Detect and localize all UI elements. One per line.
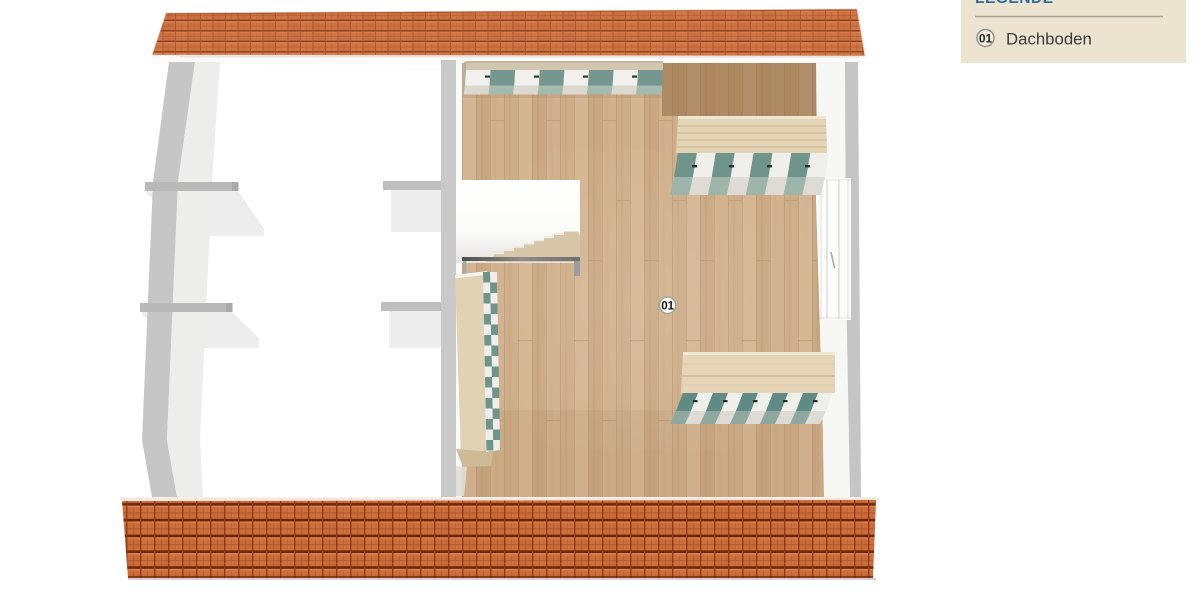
svg-text:01: 01 xyxy=(979,31,993,45)
svg-text:01: 01 xyxy=(661,301,674,313)
svg-text:LEGENDE: LEGENDE xyxy=(975,0,1053,7)
svg-text:Dachboden: Dachboden xyxy=(1006,29,1092,48)
